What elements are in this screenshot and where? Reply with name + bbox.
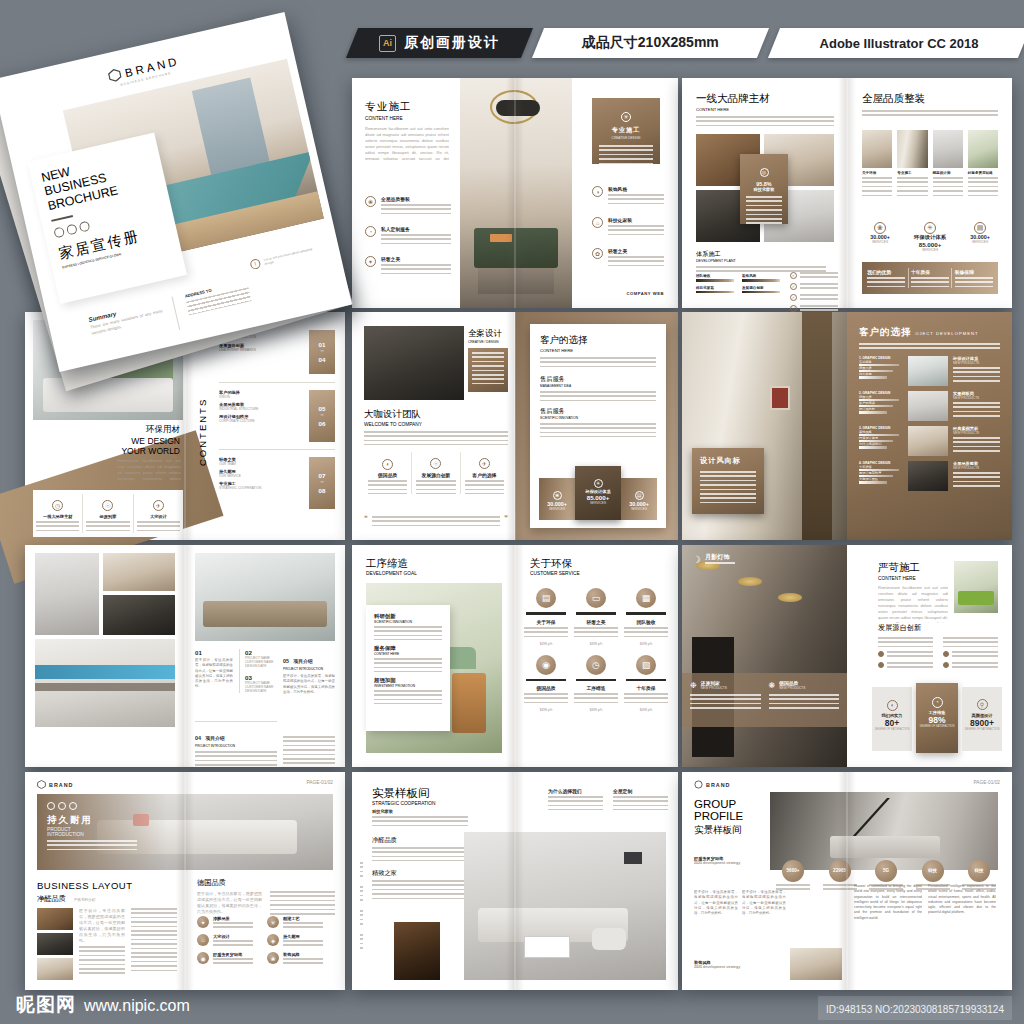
feature-label: 一线大品牌主材	[36, 514, 79, 519]
subsection-heading: 售后服务	[540, 375, 656, 384]
cell-price: $498 p/h	[624, 642, 668, 646]
section-heading: 德国品质	[197, 878, 335, 888]
image-id-badge: ID:948153 NO:20230308185719933124	[818, 996, 1012, 1020]
coffee-table	[524, 936, 570, 958]
spread-project-gallery: 01 匠于设计，专注品质家居，将梦想照进现实的生活方式，让每一处空间都被认真对待…	[25, 545, 345, 767]
feature-label: 私人定制服务	[381, 226, 451, 232]
lighting-photo	[682, 545, 847, 767]
feature-label: 全屋品质整装	[381, 196, 451, 202]
spread-strict-construction: ☽ 月影灯饰 ❉ 还原到家 NEW PRODUCTS ❋ 德国品质 NEW PR…	[682, 545, 1012, 767]
service-cell: ▭ 轻奢之美 $498 p/h	[574, 587, 618, 646]
section-subheading: WELCOME TO COMPANY	[364, 422, 508, 427]
cell-label: 十年质保	[624, 685, 668, 691]
company-web-label: COMPANY WEB	[627, 291, 664, 296]
toc-number-box: 05⋯06	[309, 390, 335, 442]
bullet-icon	[878, 651, 884, 657]
body-text-en: Huawei is committed to bringing the digi…	[854, 884, 922, 978]
knot-icon: ❀	[553, 491, 562, 500]
spread-brand-materials: 一线大品牌主材 CONTENT HERE ◎ 95.8% 科技化家装 体系施工 …	[682, 78, 1012, 308]
subsection-heading: 售后服务	[540, 407, 656, 416]
cell-label: 工序缔造	[574, 685, 618, 691]
service-cell: ◉ 德国品质 $498 p/h	[524, 654, 568, 713]
gold-lamp	[738, 577, 762, 586]
stat-unit: SERVICES	[962, 240, 998, 244]
gear-icon: ✳	[621, 112, 631, 122]
service-cell: ◷ 工序缔造 $498 p/h	[574, 654, 618, 713]
stat-card-highlight: ◔ 工序缔造 98% DEGREE OF SATISFACTION	[916, 683, 958, 753]
toc-number: 04	[319, 355, 326, 365]
molecule-icon: ❉	[690, 681, 697, 690]
quote-mark: ❝	[364, 514, 368, 526]
band-label: 我们的优势	[867, 269, 905, 275]
cell-price: $498 p/h	[574, 642, 618, 646]
bedroom-photo	[460, 78, 572, 308]
calculator-icon: ▦	[636, 588, 656, 608]
gear-icon: ✳	[924, 222, 936, 234]
toc-number-box: 07⋯08	[309, 457, 335, 509]
column-label: 好服务贯穿始终	[968, 171, 998, 175]
white-sofa	[43, 378, 173, 412]
overlay-card: 科研创新 SCIENTIFIC INNOVATION 服务保障 CONTENT …	[366, 605, 450, 731]
page-fold	[176, 545, 194, 767]
subsection-heading: 净醛品质	[372, 836, 468, 845]
stat-box-center: ✳ 环保设计体系 85.000+ SERVICES	[575, 466, 621, 520]
stat-card: ◎ 95.8% 科技化家装	[740, 154, 788, 224]
document-icon: ▤	[536, 588, 556, 608]
paper-plane-icon: ✈	[479, 458, 490, 469]
section-subheading: CONTENT HERE	[365, 116, 449, 121]
cover-badge-icon	[66, 224, 78, 236]
showroom-photo	[195, 553, 335, 641]
item-subtitle: CONTENT HERE	[374, 652, 442, 656]
body-text-en: Personalized intelligent experience in t…	[928, 884, 996, 978]
wall-art	[770, 386, 790, 410]
software-name: Adobe Illustrator CC 2018	[774, 36, 1024, 51]
section-subheading: OJECT DEVELOPMENT	[915, 331, 978, 336]
band-subtitle: NEW PRODUCTS	[779, 686, 805, 690]
strategy-sublabel: 2025 development strategy	[694, 861, 766, 865]
image-id-text: ID:948153 NO:20230308185719933124	[826, 1004, 1004, 1015]
case-row: 3. GRAPHIC DESIGN 装饰风格 环保设计体系 为什么选择我们 经典…	[859, 426, 1000, 456]
subsection-heading: 体系施工	[696, 250, 776, 259]
case-thumb	[908, 461, 948, 491]
toc-item-en: OUR TEAM	[219, 462, 301, 466]
feature-label: 轻奢之美	[381, 256, 451, 262]
section-subheading: CUSTOMER SERVICE	[530, 571, 580, 576]
subsection-subheading: MANAGEMENT IDEA	[540, 384, 656, 388]
stat-badge: 5G	[875, 860, 897, 882]
knot-icon: ❀	[874, 222, 886, 234]
custom-service-icon: ◔	[365, 226, 376, 237]
toc-number: 08	[319, 486, 326, 496]
band-label: 十年质保	[911, 269, 949, 275]
subsection-heading: 发展源自创新	[878, 623, 998, 633]
brand-logo-text: BRAND	[706, 782, 730, 788]
feature-label: 装饰风格	[608, 186, 664, 192]
badge-icon	[58, 802, 66, 810]
section-heading-en: WE DESIGN	[80, 436, 180, 446]
feature-label: 还原到家	[86, 514, 129, 519]
item-subtitle: SCIENTIFIC INNOVATION	[374, 620, 442, 624]
page-number: PAGE-01/02	[973, 780, 1000, 785]
section-heading: 全屋品质整装	[862, 92, 998, 106]
tech-home-icon: ⌂	[592, 217, 603, 228]
style-icon: ◑	[592, 186, 603, 197]
section-heading: PROFILE	[694, 810, 766, 822]
gray-sofa	[830, 836, 940, 858]
toc-item-en: LEADERSHIP REMARKS	[219, 348, 301, 352]
hexagon-logo-icon	[37, 780, 46, 789]
adobe-illustrator-icon: Ai	[379, 35, 396, 52]
feature-label: 轻奢之美	[608, 248, 664, 254]
large-livingroom-photo	[464, 832, 666, 980]
beauty-icon: ✿	[592, 248, 603, 259]
banner-overlay: 持久耐用 PRODUCT INTRODUCTION	[37, 794, 167, 870]
margin-notes	[360, 862, 366, 950]
column-label: 关于环保	[862, 171, 892, 175]
stat-unit: SERVICES	[862, 240, 898, 244]
quality-icon: ❀	[365, 196, 376, 207]
cell-price: $498 p/h	[524, 708, 568, 712]
stat-badge: 22965	[829, 860, 851, 882]
list-number: 01	[195, 649, 233, 656]
column-heading: 为什么选择我们	[548, 788, 603, 794]
orange-pillow	[490, 234, 512, 242]
case-thumb	[908, 426, 948, 456]
project-subtitle: PROJECT INTRODUCTION	[195, 744, 277, 748]
stat-title: 环保设计体系	[904, 234, 956, 241]
shield-icon: ◈	[267, 934, 279, 946]
info-icon: !	[249, 258, 261, 270]
stat-label: 科技化家装	[746, 187, 782, 192]
body-text-cn: 匠于设计，专注品质家居，将梦想照进现实的生活方式，让每一处空间都被认真对待，传递…	[742, 890, 786, 952]
stat-unit: SERVICES	[575, 501, 621, 505]
brown-info-box: ✳ 专业施工 CREATIVE DESIGN	[592, 98, 660, 164]
column-heading: 全屋定制	[613, 788, 668, 794]
product-info-bar: Ai 原创画册设计 成品尺寸210X285mm Adobe Illustrato…	[352, 28, 1024, 58]
brown-list-page: 客户的选择 OJECT DEVELOPMENT 1. GRAPHIC DESIG…	[847, 312, 1012, 540]
product-size-segment: 成品尺寸210X285mm	[532, 28, 769, 58]
cell-price: $498 p/h	[574, 708, 618, 712]
caption-title: 设计风向标	[700, 456, 756, 466]
band-label: 装修保障	[955, 269, 993, 275]
toc-number: 07	[319, 471, 326, 481]
bulb-icon: ☉	[102, 500, 113, 511]
product-title: 原创画册设计	[404, 34, 500, 52]
subsection-heading: 净醛品质	[37, 894, 66, 904]
stat-badge: 科技	[968, 860, 990, 882]
case-subtitle: NEW PRODUCTS	[953, 396, 1000, 400]
toc-item-en: VISION	[219, 395, 301, 399]
product-title-segment: Ai 原创画册设计	[346, 28, 533, 58]
wooden-chair	[452, 673, 486, 733]
project-title: 项目介绍	[293, 659, 312, 664]
bullet-icon	[943, 662, 949, 668]
wall-tv	[624, 852, 642, 864]
project-subtitle: PROJECT INTRODUCTION	[283, 667, 335, 671]
software-segment: Adobe Illustrator CC 2018	[767, 28, 1024, 58]
toc-item-en: OUR SERVICE	[219, 474, 301, 478]
feature-label: 科技化家装	[608, 217, 664, 223]
feature-label: 客户的选择	[465, 472, 504, 478]
bed-blanket	[478, 268, 554, 294]
grid-label: 持久耐用	[283, 934, 323, 939]
body-text: 匠于设计，专注品质家居，将梦想照进现实的生活方式，让每一处空间都被认真对待，传递…	[79, 908, 125, 942]
service-cell: ▤ 关于环保 $498 p/h	[524, 587, 568, 646]
signal-icon: ◉	[536, 655, 556, 675]
service-cell: ▦ 团队验收 $498 p/h	[624, 587, 668, 646]
badge-icon: ✓	[790, 294, 797, 301]
bulb-icon: ☉	[430, 458, 441, 469]
spread-process-eco: 工序缔造 DEVELOPMENT GOAL 科研创新 SCIENTIFIC IN…	[352, 545, 678, 767]
card-title: 客户的选择	[540, 334, 656, 347]
body-text: Remimeram faculborem aut aut unto conshe…	[365, 126, 449, 160]
page-fold	[838, 78, 856, 308]
section-heading: 关于环保	[530, 557, 580, 571]
subsection-subheading: DEVELOPMENT PLANT	[696, 259, 776, 263]
lamp-cloud	[496, 100, 540, 116]
grid-label: 净醛品质	[213, 916, 253, 921]
case-thumb	[908, 356, 948, 386]
column-label: 专业施工	[897, 171, 927, 175]
stat-unit: SERVICES	[904, 248, 956, 252]
toc-number: 06	[319, 419, 326, 429]
section-heading: 客户的选择 OJECT DEVELOPMENT	[859, 326, 1000, 339]
stat-badge: 科技	[922, 860, 944, 882]
wood-cabinet	[802, 312, 832, 540]
quote-mark: ❞	[504, 514, 508, 526]
section-subheading: CONTENT HERE	[696, 107, 834, 112]
project-text: 匠于设计，专注品质家居，将梦想照进现实的生活方式，让每一处空间都被认真对待，传递…	[195, 658, 233, 722]
case-subtitle: NEW PRODUCTS	[953, 361, 1000, 365]
service-icon: ◉	[197, 952, 209, 964]
cell-label: 轻奢之美	[574, 619, 618, 625]
advantage-band: 我们的优势 十年质保 装修保障	[862, 262, 998, 294]
bar-label: 科技化家装	[696, 286, 734, 290]
vendor-logo: 月影灯饰	[705, 553, 735, 562]
card-subtitle: CONTENT HERE	[540, 348, 656, 353]
feature-label: 发展源自创新	[416, 472, 455, 478]
stat-card: ◖ 我们的实力 80+ DEGREE OF SATISFACTION	[872, 687, 912, 751]
sofa-set	[203, 601, 327, 627]
dark-interior-photo	[394, 922, 440, 980]
badge-icon: ✓	[790, 305, 797, 312]
page-fold	[506, 545, 524, 767]
item-title: 服务保障	[374, 645, 442, 652]
section-heading-cn: 环保用材	[80, 424, 180, 436]
section-heading: 工序缔造	[366, 557, 417, 571]
countertop	[35, 683, 175, 691]
interior-photo	[364, 326, 464, 400]
spread-design-team: 全案设计 CREATIVE / DESIGN 大咖设计团队 WELCOME TO…	[352, 312, 678, 540]
spread-group-profile: BRAND PAGE-01/02 GROUP PROFILE 实景样板间 好服务…	[682, 772, 1012, 990]
green-sofa	[958, 591, 994, 605]
translucent-band: ❉ 还原到家 NEW PRODUCTS ❋ 德国品质 NEW PRODUCTS	[682, 673, 847, 727]
body-text: 匠于设计，专注品质家居，将梦想照进现实的生活方式，让每一处空间都被认真对待，传递…	[197, 891, 262, 917]
stat-unit: SERVICES	[539, 507, 575, 511]
stat-card: ⚲ 高颜值设计 8900+ DEGREE OF SATISFACTION	[962, 687, 1002, 751]
grid-label: 装饰风格	[283, 952, 323, 957]
section-heading-cn: 实景样板间	[694, 824, 766, 837]
project-title: 项目介绍	[205, 736, 224, 741]
spread-style-guide: 设计风向标 客户的选择 OJECT DEVELOPMENT 1. GRAPHIC…	[682, 312, 1012, 540]
chat-icon: ◖	[382, 459, 393, 470]
box-subtitle: CREATIVE DESIGN	[599, 136, 653, 140]
list-number: 03	[245, 674, 277, 681]
cell-price: $498 p/h	[624, 708, 668, 712]
badge-icon: ✓	[790, 283, 797, 290]
item-title: 超强加固	[374, 677, 442, 684]
project-text: 匠于设计，专注品质家居，将梦想照进现实的生活方式，让每一处空间都被认真对待，传递…	[283, 674, 335, 732]
site-name: 昵图网	[16, 992, 76, 1018]
project-field: DESIGN DATE	[245, 689, 277, 693]
list-number: 05	[283, 658, 289, 664]
section-heading: 专业施工	[365, 100, 449, 114]
stat-value: 98%	[916, 715, 958, 725]
stat-value: 80+	[872, 718, 912, 728]
caption-card: 设计风向标	[692, 448, 764, 514]
hexagon-logo-icon	[694, 780, 703, 789]
stat-value: 8900+	[962, 718, 1002, 728]
spread-business-layout: BRAND PAGE-01/02 持久耐用 PRODUCT INTRODUCTI…	[25, 772, 345, 990]
clock-icon: ◷	[586, 655, 606, 675]
small-lounge-photo	[790, 948, 842, 980]
hexagon-logo-icon	[107, 68, 123, 84]
list-number: 04	[195, 735, 201, 741]
subsection-subheading: SCIENTIFIC INNOVATION	[540, 416, 656, 420]
cell-label: 关于环保	[524, 619, 568, 625]
site-url: www.nipic.com	[84, 997, 190, 1015]
clock-chat-icon: ◷	[52, 500, 63, 511]
luxury-icon: ✦	[365, 256, 376, 267]
bar-label: 为什么选择我们	[859, 442, 903, 446]
stat-unit: SERVICES	[621, 507, 657, 511]
toc-number-box: 01⋯04	[309, 330, 335, 374]
cover-badge-icon	[53, 227, 65, 239]
dining-photo	[103, 595, 175, 635]
case-row: 1. GRAPHIC DESIGN 售后服务 德国品质 持久耐用 环保设计体系N…	[859, 356, 1000, 386]
grid-label: 精湛工艺	[283, 916, 323, 921]
box-title: 专业施工	[599, 126, 653, 135]
ottoman	[592, 928, 626, 950]
section-heading: BUSINESS LAYOUT	[37, 880, 177, 891]
item-subtitle: INVESTMENT PROMOTION	[374, 684, 442, 688]
banner-subtitle: INTRODUCTION	[47, 832, 157, 837]
toc-item-en: STRATEGIC COOPERATION	[219, 486, 301, 490]
toc-number: 01	[319, 340, 326, 350]
band-subtitle: NEW PRODUCTS	[701, 686, 727, 690]
list-number: 02	[245, 649, 277, 656]
badge-icon	[47, 802, 55, 810]
feature-label: 德国品质	[368, 472, 407, 478]
grid-label: 大宅设计	[213, 934, 253, 939]
moon-icon: ☽	[692, 554, 701, 565]
quality-icon: ✦	[197, 916, 209, 928]
kitchen-photo	[35, 639, 175, 727]
cover-note: Let us tell you more about amazing desig…	[263, 245, 321, 266]
green-bed	[474, 228, 558, 268]
section-subheading: STRATEGIC COOPERATION	[372, 801, 468, 806]
sub-label: 科技化家装	[372, 809, 468, 814]
cell-label: 团队验收	[624, 619, 668, 625]
livingroom-photo	[35, 553, 99, 635]
section-heading-en: YOUR WORLD	[80, 446, 180, 456]
photo-subtitle: CREATIVE / DESIGN	[468, 340, 510, 344]
green-sofa-photo	[954, 561, 998, 613]
network-icon: ❋	[769, 681, 776, 690]
bar-label: 装饰风格	[742, 274, 780, 278]
badge-icon	[69, 802, 77, 810]
case-row: 4. GRAPHIC DESIGN 十年质保 用设计规划秩序 大咖设计团队 全屋…	[859, 461, 1000, 491]
body-text: Remimeram faculborem aut aut unto conshe…	[117, 458, 181, 484]
white-content-card: 客户的选择 CONTENT HERE 售后服务 MANAGEMENT IDEA …	[530, 324, 666, 528]
bedroom-photo	[103, 553, 175, 591]
photo-title: 全案设计	[468, 328, 510, 340]
person-chat-icon: ◔	[932, 697, 943, 708]
page-number: PAGE-01/02	[306, 780, 333, 785]
brand-logo-text: BRAND	[49, 782, 73, 788]
strategy-sublabel: 2025 development strategy	[694, 965, 764, 969]
stat-value: 85.000+	[575, 494, 621, 501]
grid-label: 好服务贯穿始终	[213, 952, 253, 957]
service-cell: ▧ 十年质保 $498 p/h	[624, 654, 668, 713]
gear-icon: ✳	[594, 479, 603, 488]
section-subheading: CONTENT HERE	[878, 576, 948, 581]
case-row: 2. GRAPHIC DESIGN 德国品质 客户的选择 设计风向标 实景样板间…	[859, 391, 1000, 421]
section-heading: 严苛施工	[878, 561, 948, 575]
spread-showroom: 实景样板间 STRATEGIC COOPERATION 科技化家装 净醛品质 精…	[352, 772, 678, 990]
cell-price: $498 p/h	[524, 642, 568, 646]
case-subtitle: NEW PRODUCTS	[953, 466, 1000, 470]
cover-badge-icon	[79, 221, 91, 233]
bar-label: 团队验收	[696, 274, 734, 278]
section-subheading: DEVELOPMENT GOAL	[366, 571, 417, 576]
stat-sub: DEGREE OF SATISFACTION	[962, 728, 1002, 731]
stat-sub: DEGREE OF SATISFACTION	[916, 725, 958, 728]
bar-label: 用设计规划秩序	[859, 471, 903, 475]
column-label: 精英设计师	[933, 171, 963, 175]
stock-preview-page: { "topbar": { "ai_badge": "Ai", "title":…	[0, 0, 1024, 1024]
project-field: DESIGN DATE	[245, 664, 277, 668]
section-heading: 实景样板间	[372, 786, 468, 801]
gold-lamp	[778, 593, 802, 602]
printer-icon: ▤	[635, 491, 644, 500]
feature-label: 大宅设计	[137, 514, 180, 519]
stat-sub: DEGREE OF SATISFACTION	[872, 728, 912, 731]
paper-plane-icon: ✈	[153, 500, 164, 511]
section-heading: 一线大品牌主材	[696, 92, 834, 106]
body-text: Remimeram faculborem aut aut unto conshe…	[878, 585, 948, 623]
blue-backsplash	[35, 665, 175, 679]
badge-icon: ✓	[790, 272, 797, 279]
monitor-icon: ▭	[586, 588, 606, 608]
toc-number: 05	[319, 404, 326, 414]
section-heading: GROUP	[694, 798, 766, 810]
list-icon: ▧	[636, 655, 656, 675]
subsection-heading: 精致之家	[372, 869, 468, 878]
product-size: 成品尺寸210X285mm	[538, 34, 763, 52]
item-title: 科研创新	[374, 613, 442, 620]
style-icon: ❀	[267, 952, 279, 964]
banner-photo: 持久耐用 PRODUCT INTRODUCTION	[37, 794, 333, 870]
craft-icon: ✳	[267, 916, 279, 928]
cell-label: 德国品质	[524, 685, 568, 691]
stat-box: ▤ 30.000+ SERVICES	[621, 478, 657, 520]
org-chart-icon: ⚲	[977, 699, 988, 710]
stat-value: 85.000+	[904, 241, 956, 248]
bullet-icon	[878, 662, 884, 668]
contents-vertical-label: CONTENTS	[197, 346, 208, 466]
